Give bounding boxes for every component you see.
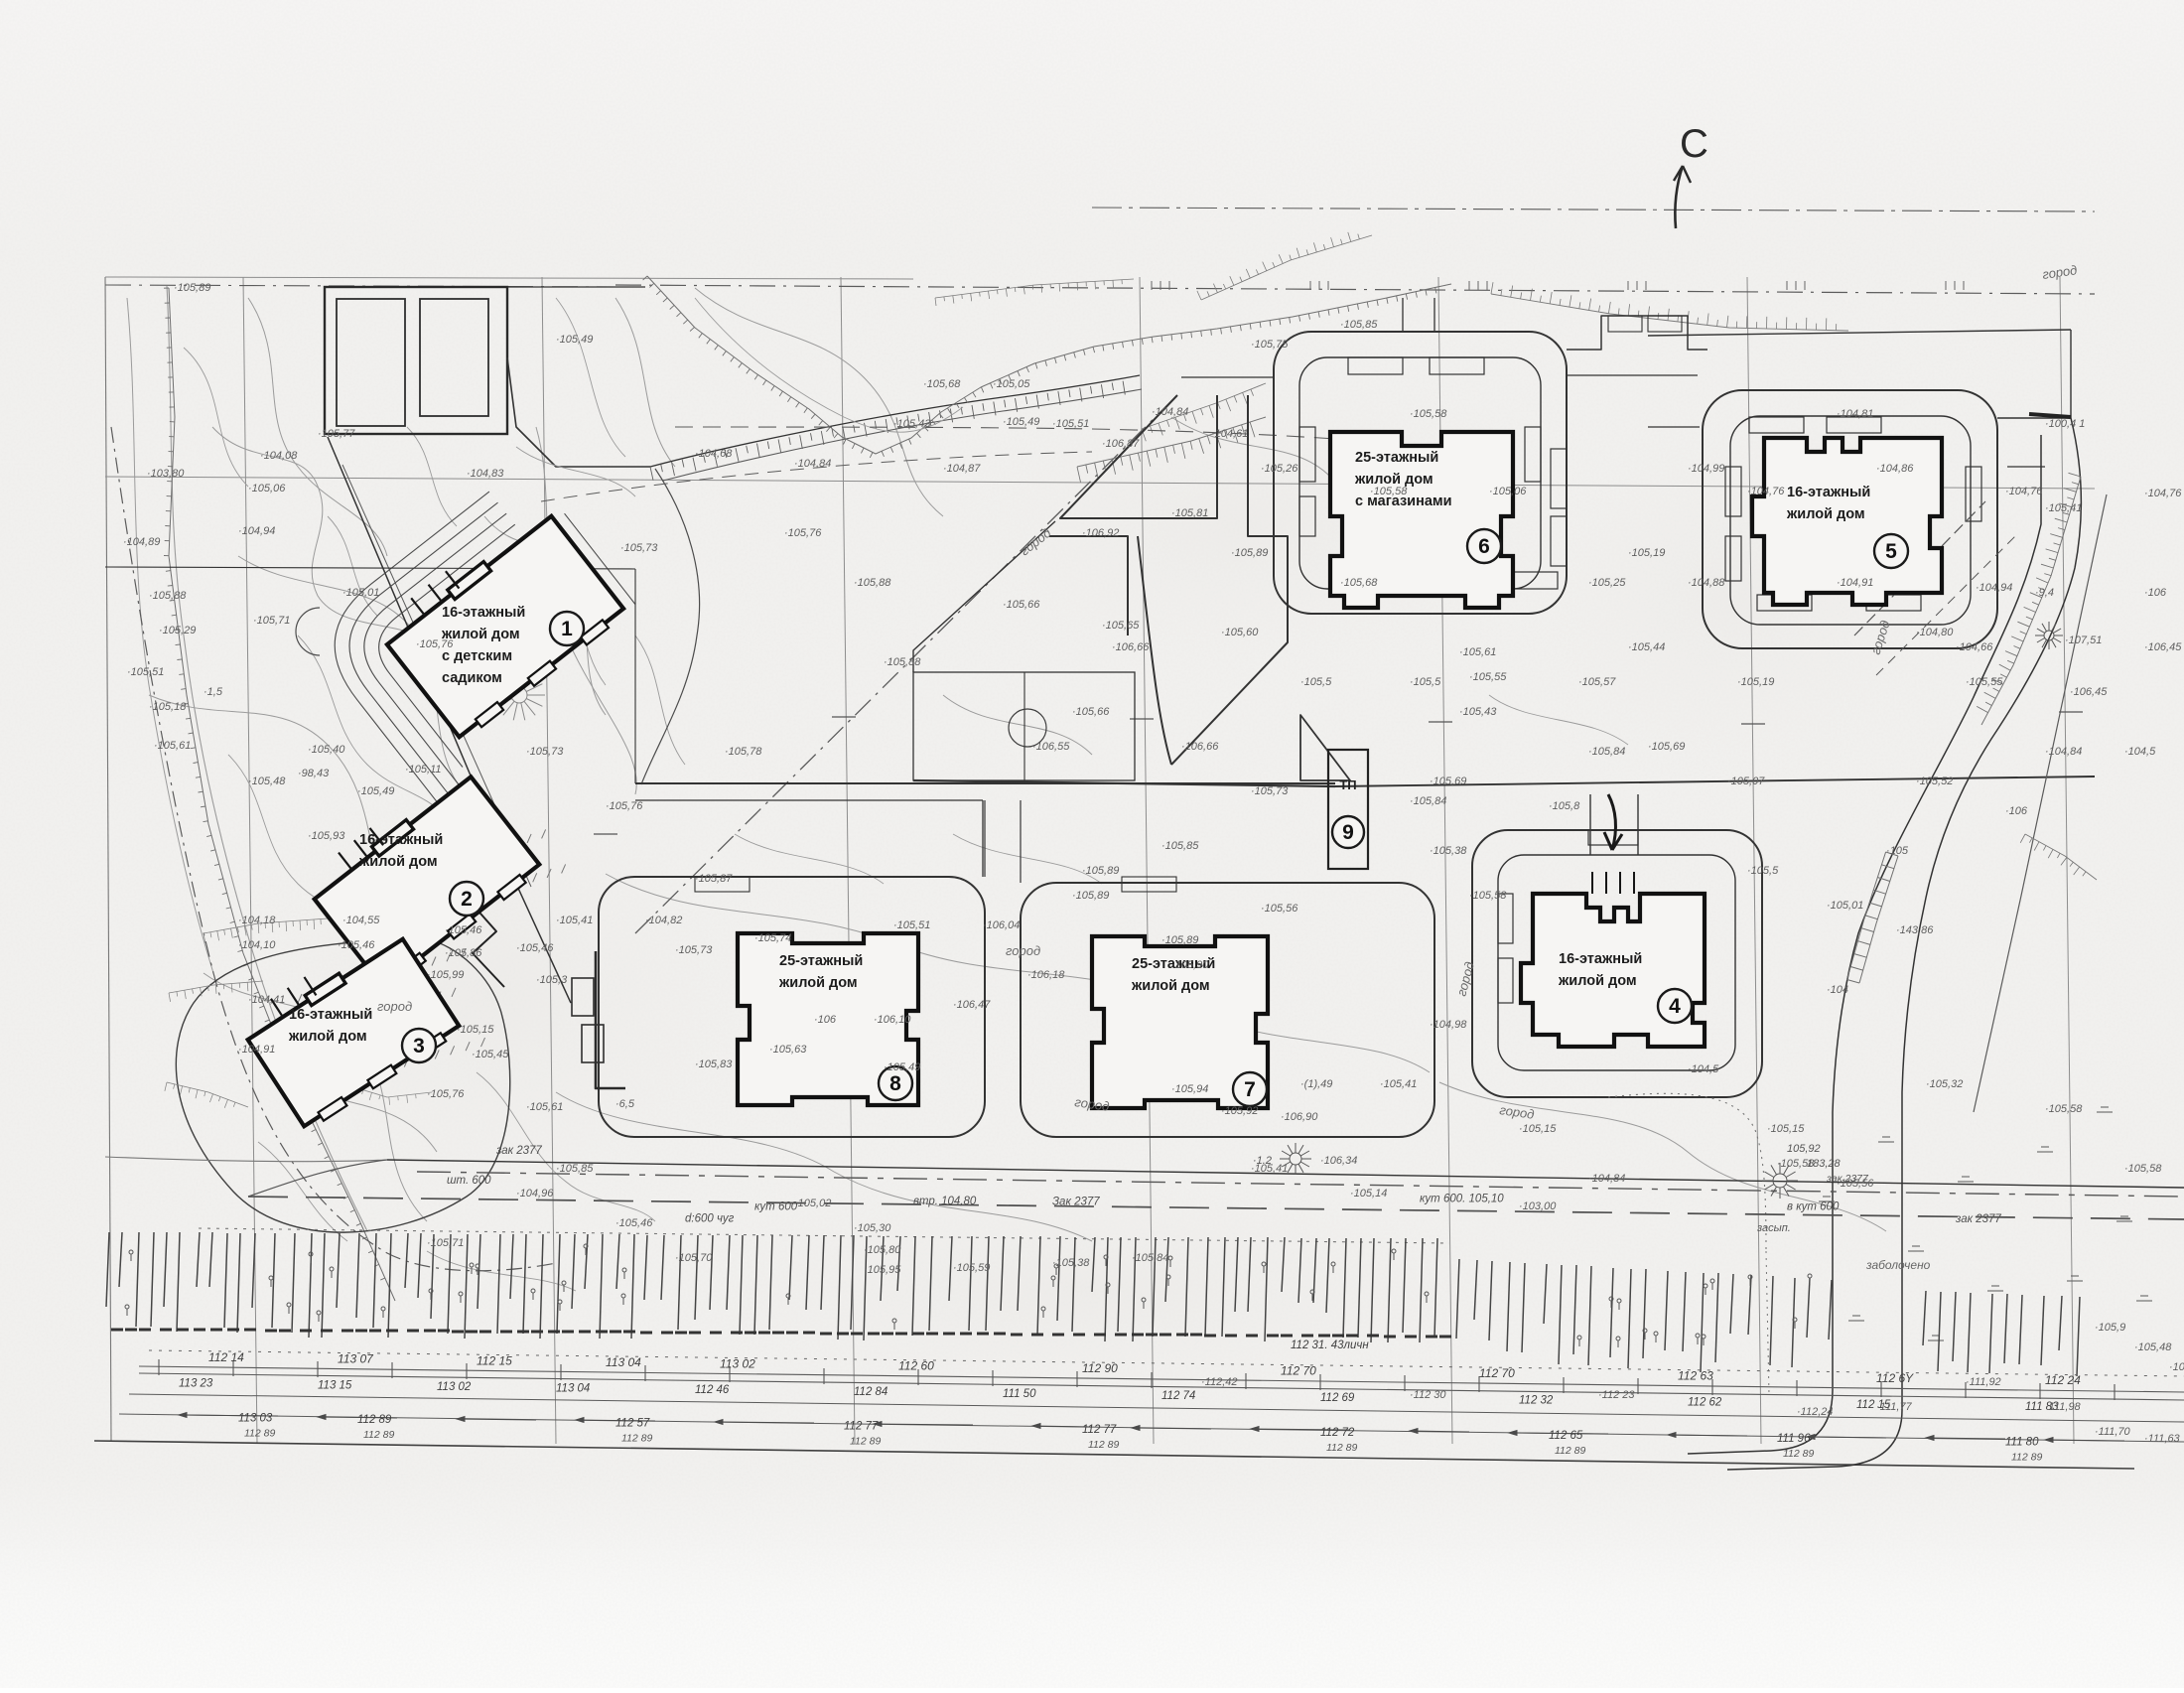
svg-text:С: С: [1680, 122, 1708, 166]
svg-text:·105,8: ·105,8: [1549, 800, 1580, 812]
svg-text:·105,89: ·105,89: [174, 282, 210, 294]
svg-text:·105,88: ·105,88: [854, 577, 891, 589]
svg-text:·105,66: ·105,66: [1003, 599, 1040, 611]
svg-text:·105,61: ·105,61: [1459, 646, 1496, 658]
svg-text:·105,46: ·105,46: [445, 924, 482, 936]
svg-text:·104,76: ·104,76: [2005, 486, 2043, 497]
svg-text:·105,01: ·105,01: [342, 587, 379, 599]
svg-text:4: 4: [1669, 995, 1681, 1018]
svg-text:·105,83: ·105,83: [695, 1058, 733, 1070]
svg-text:·105,73: ·105,73: [675, 944, 713, 956]
svg-text:·104,89: ·104,89: [123, 536, 160, 548]
svg-text:·105,85: ·105,85: [556, 1163, 594, 1175]
svg-text:·100,4 1: ·100,4 1: [2045, 418, 2085, 430]
svg-text:·104,76: ·104,76: [1747, 486, 1785, 497]
svg-text:жилой дом: жилой дом: [1558, 973, 1637, 989]
svg-text:·105,01: ·105,01: [1827, 900, 1863, 912]
svg-text:·106,87: ·106,87: [1102, 438, 1140, 450]
svg-text:112 69: 112 69: [1320, 1392, 1355, 1404]
svg-text:·104,68: ·104,68: [695, 448, 733, 460]
svg-text:·104,80: ·104,80: [1916, 627, 1954, 638]
svg-text:·105,52: ·105,52: [1916, 776, 1953, 787]
svg-text:·105,63: ·105,63: [769, 1044, 807, 1056]
svg-text:кут 600. 105,10: кут 600. 105,10: [1420, 1193, 1504, 1204]
svg-text:·111,70: ·111,70: [2095, 1426, 2131, 1438]
svg-text:·104,81: ·104,81: [1837, 408, 1873, 420]
svg-text:·104,99: ·104,99: [1688, 463, 1724, 475]
svg-text:·105,55: ·105,55: [1966, 676, 2003, 688]
svg-text:113 03: 113 03: [238, 1413, 273, 1425]
svg-text:жилой дом: жилой дом: [1786, 506, 1865, 522]
svg-text:112 89: 112 89: [1555, 1445, 1585, 1457]
svg-text:·111,98: ·111,98: [2045, 1401, 2082, 1413]
svg-text:·105,99: ·105,99: [427, 969, 464, 981]
svg-text:·105,74: ·105,74: [754, 932, 791, 944]
svg-text:·105,47: ·105,47: [2169, 1361, 2184, 1373]
svg-text:·106,47: ·106,47: [953, 999, 991, 1011]
svg-text:112 89: 112 89: [621, 1433, 652, 1445]
svg-text:112 65: 112 65: [1549, 1430, 1583, 1442]
svg-text:·106,66: ·106,66: [1181, 741, 1219, 753]
svg-text:112 89: 112 89: [2011, 1451, 2042, 1463]
svg-text:·105,93: ·105,93: [308, 830, 345, 842]
svg-text:·105,51: ·105,51: [1052, 418, 1089, 430]
svg-text:112 84: 112 84: [854, 1386, 887, 1398]
svg-text:·105,38: ·105,38: [1430, 845, 1467, 857]
svg-text:105,92: 105,92: [1787, 1143, 1821, 1155]
svg-text:·105,85: ·105,85: [1161, 840, 1199, 852]
svg-text:113 04: 113 04: [556, 1382, 590, 1394]
svg-text:садиком: садиком: [442, 670, 502, 686]
svg-text:·105,41: ·105,41: [1380, 1078, 1417, 1090]
svg-text:·104,91: ·104,91: [1837, 577, 1873, 589]
svg-text:·105,84: ·105,84: [1588, 746, 1625, 758]
svg-text:·105,30: ·105,30: [854, 1222, 891, 1234]
svg-text:·105,25: ·105,25: [1588, 577, 1626, 589]
svg-text:113 02: 113 02: [437, 1381, 472, 1393]
svg-text:·105,60: ·105,60: [1221, 627, 1259, 638]
svg-text:·106,10: ·106,10: [874, 1014, 911, 1026]
svg-text:·105,88: ·105,88: [149, 590, 187, 602]
svg-text:·104,94: ·104,94: [1976, 582, 2012, 594]
svg-text:город: город: [1006, 943, 1040, 958]
svg-text:·105,75: ·105,75: [1251, 339, 1289, 351]
svg-text:·105,69: ·105,69: [1430, 776, 1466, 787]
svg-text:·112,42: ·112,42: [1201, 1376, 1238, 1388]
svg-text:·104,5: ·104,5: [1688, 1063, 1719, 1075]
svg-text:25-этажный: 25-этажный: [779, 953, 863, 969]
svg-text:·104,96: ·104,96: [516, 1188, 554, 1199]
svg-text:Зак 2377: Зак 2377: [1052, 1196, 1100, 1207]
svg-text:·105,15: ·105,15: [1767, 1123, 1805, 1135]
svg-text:112 24: 112 24: [2045, 1373, 2081, 1387]
svg-text:·104,5: ·104,5: [2124, 746, 2156, 758]
svg-text:·105,06: ·105,06: [248, 483, 286, 494]
svg-text:·143,86: ·143,86: [1896, 924, 1934, 936]
svg-text:ТП: ТП: [1339, 777, 1356, 792]
svg-text:зак 2377: зак 2377: [1826, 1173, 1869, 1185]
svg-text:·105,51: ·105,51: [893, 919, 930, 931]
svg-text:111 50: 111 50: [1003, 1388, 1036, 1400]
svg-text:·105,38: ·105,38: [1052, 1257, 1090, 1269]
svg-text:·105,69: ·105,69: [1648, 741, 1685, 753]
svg-text:·105,07: ·105,07: [1727, 776, 1765, 787]
svg-text:·105,15: ·105,15: [1519, 1123, 1557, 1135]
svg-text:·105,86: ·105,86: [445, 947, 482, 959]
svg-text:втр. 104,80: втр. 104,80: [913, 1196, 977, 1207]
svg-text:·104,83: ·104,83: [467, 468, 504, 480]
svg-text:113 02: 113 02: [720, 1356, 755, 1370]
svg-text:113 23: 113 23: [179, 1378, 213, 1390]
svg-text:·105,58: ·105,58: [1469, 890, 1507, 902]
svg-text:·105,84: ·105,84: [1132, 1252, 1168, 1264]
svg-text:·105,70: ·105,70: [675, 1252, 713, 1264]
svg-text:·104,76: ·104,76: [2144, 488, 2182, 499]
svg-text:·105,41: ·105,41: [2045, 502, 2082, 514]
svg-text:·105,06: ·105,06: [1489, 486, 1527, 497]
svg-text:2: 2: [461, 888, 473, 911]
svg-text:·105,49: ·105,49: [884, 1061, 920, 1073]
svg-text:·112 23: ·112 23: [1598, 1389, 1635, 1401]
svg-text:16-этажный: 16-этажный: [442, 605, 525, 621]
svg-text:·104,61: ·104,61: [1211, 428, 1248, 440]
svg-text:·105,71: ·105,71: [253, 615, 290, 627]
svg-text:·105,76: ·105,76: [416, 638, 454, 650]
svg-text:183,28: 183,28: [1807, 1158, 1842, 1170]
svg-text:112 46: 112 46: [695, 1384, 730, 1396]
svg-text:·112,24: ·112,24: [1797, 1406, 1834, 1418]
svg-text:112 70: 112 70: [1281, 1364, 1316, 1378]
svg-text:·104,10: ·104,10: [238, 939, 276, 951]
svg-text:·105,58: ·105,58: [2045, 1103, 2083, 1115]
svg-text:·105,02: ·105,02: [794, 1198, 831, 1209]
svg-text:·105,89: ·105,89: [1231, 547, 1268, 559]
svg-text:112 74: 112 74: [1161, 1390, 1195, 1402]
svg-text:·106,90: ·106,90: [1281, 1111, 1318, 1123]
svg-text:·1.2: ·1.2: [1253, 1155, 1272, 1167]
svg-text:·105,85: ·105,85: [1340, 319, 1378, 331]
svg-text:112 89: 112 89: [1088, 1439, 1119, 1451]
svg-text:·9,4: ·9,4: [2035, 587, 2054, 599]
svg-text:·105,73: ·105,73: [1251, 785, 1289, 797]
svg-text:·104,41: ·104,41: [248, 994, 285, 1006]
svg-text:16-этажный: 16-этажный: [1559, 951, 1642, 967]
svg-text:·104,84: ·104,84: [794, 458, 831, 470]
svg-text:·106,66: ·106,66: [1112, 641, 1150, 653]
svg-text:·105,58: ·105,58: [1410, 408, 1447, 420]
svg-text:d:600 чуг: d:600 чуг: [685, 1212, 735, 1224]
svg-text:112 14: 112 14: [208, 1350, 244, 1364]
svg-text:·106,18: ·106,18: [1027, 969, 1065, 981]
svg-text:113 04: 113 04: [606, 1355, 641, 1369]
svg-text:16-этажный: 16-этажный: [1787, 485, 1870, 500]
svg-text:·105,80: ·105,80: [864, 1244, 901, 1256]
svg-text:3: 3: [413, 1035, 425, 1058]
svg-text:·105,65: ·105,65: [1102, 620, 1140, 632]
svg-text:·105,81: ·105,81: [1171, 507, 1208, 519]
svg-text:·105,43: ·105,43: [1459, 706, 1497, 718]
svg-text:8: 8: [889, 1072, 901, 1095]
svg-text:·105,32: ·105,32: [1926, 1078, 1963, 1090]
svg-text:·106,45: ·106,45: [2144, 641, 2182, 653]
svg-text:зак 2377: зак 2377: [1955, 1213, 2001, 1225]
svg-text:112 32: 112 32: [1519, 1395, 1554, 1407]
svg-text:·105,48: ·105,48: [2134, 1341, 2172, 1353]
svg-text:·104,08: ·104,08: [260, 450, 298, 462]
svg-text:112 89: 112 89: [850, 1436, 881, 1448]
svg-text:·105,11: ·105,11: [405, 764, 442, 776]
svg-text:·105,89: ·105,89: [1082, 865, 1119, 877]
svg-text:112 62: 112 62: [1688, 1397, 1722, 1409]
svg-text:·106,92: ·106,92: [1082, 527, 1119, 539]
svg-text:·105,18: ·105,18: [149, 701, 187, 713]
svg-text:·105,76: ·105,76: [784, 527, 822, 539]
svg-text:111 80: 111 80: [2005, 1436, 2039, 1448]
svg-text:112 89: 112 89: [244, 1428, 275, 1440]
svg-text:·105,40: ·105,40: [308, 744, 345, 756]
svg-text:·105,92: ·105,92: [1221, 1105, 1258, 1117]
svg-text:·105,55: ·105,55: [1469, 671, 1507, 683]
svg-text:1: 1: [561, 618, 573, 640]
svg-text:112 63: 112 63: [1678, 1369, 1713, 1383]
svg-text:·105,45: ·105,45: [472, 1049, 509, 1060]
svg-text:заболочено: заболочено: [1865, 1258, 1931, 1272]
svg-text:кут 600: кут 600: [754, 1201, 798, 1213]
svg-text:113 07: 113 07: [338, 1352, 374, 1366]
svg-text:·105,71: ·105,71: [427, 1237, 464, 1249]
svg-text:·112 30: ·112 30: [1410, 1389, 1446, 1401]
svg-text:·105,76: ·105,76: [427, 1088, 465, 1100]
svg-text:·105,88: ·105,88: [884, 656, 921, 668]
svg-text:·98,43: ·98,43: [298, 768, 330, 779]
svg-text:·105,48: ·105,48: [248, 776, 286, 787]
svg-text:·105,87: ·105,87: [695, 873, 733, 885]
svg-text:·106: ·106: [2005, 805, 2028, 817]
svg-text:·105,89: ·105,89: [1161, 934, 1198, 946]
svg-text:·105,59: ·105,59: [953, 1262, 990, 1274]
svg-text:112 77: 112 77: [844, 1421, 879, 1433]
svg-text:·105,5: ·105,5: [1747, 865, 1779, 877]
svg-text:·105,77: ·105,77: [318, 428, 355, 440]
svg-text:113 15: 113 15: [318, 1379, 352, 1391]
svg-text:·105,73: ·105,73: [620, 542, 658, 554]
svg-text:засып.: засып.: [1756, 1222, 1791, 1234]
svg-text:·105,76: ·105,76: [606, 800, 643, 812]
svg-text:·105,51: ·105,51: [127, 666, 164, 678]
svg-text:·105,3: ·105,3: [536, 974, 568, 986]
svg-text:·105,66: ·105,66: [1072, 706, 1110, 718]
svg-text:зак 2377: зак 2377: [495, 1145, 542, 1157]
svg-text:·105,44: ·105,44: [1628, 641, 1665, 653]
svg-text:112 15: 112 15: [477, 1353, 512, 1367]
svg-text:·104: ·104: [1827, 984, 1848, 996]
svg-text:16-этажный: 16-этажный: [289, 1007, 372, 1023]
svg-text:·105,43: ·105,43: [893, 418, 931, 430]
svg-text:·105,19: ·105,19: [1737, 676, 1774, 688]
svg-text:·106,34: ·106,34: [1320, 1155, 1357, 1167]
svg-text:·104,91: ·104,91: [238, 1044, 275, 1056]
svg-text:·105,49: ·105,49: [556, 334, 593, 346]
svg-text:·105,94: ·105,94: [1171, 1083, 1208, 1095]
svg-text:·105,73: ·105,73: [526, 746, 564, 758]
svg-text:·103,80: ·103,80: [147, 468, 185, 480]
svg-text:·106,55: ·106,55: [1032, 741, 1070, 753]
svg-text:5: 5: [1885, 540, 1897, 563]
svg-text:·105,56: ·105,56: [1261, 903, 1298, 915]
svg-text:·111,77: ·111,77: [1876, 1401, 1913, 1413]
svg-text:·105: ·105: [1886, 845, 1909, 857]
svg-text:·105,5: ·105,5: [1300, 676, 1332, 688]
svg-text:112 89: 112 89: [357, 1414, 392, 1426]
svg-text:·104,82: ·104,82: [645, 915, 682, 926]
svg-text:16-этажный: 16-этажный: [359, 832, 443, 848]
svg-text:·105,61: ·105,61: [526, 1101, 563, 1113]
svg-text:·105,46: ·105,46: [615, 1217, 653, 1229]
svg-text:·106: ·106: [814, 1014, 837, 1026]
svg-text:·105,15: ·105,15: [457, 1024, 494, 1036]
svg-text:·(1),49: ·(1),49: [1300, 1078, 1332, 1090]
svg-text:112 89: 112 89: [1326, 1442, 1357, 1454]
svg-text:25-этажный: 25-этажный: [1355, 450, 1438, 466]
svg-text:·106,04: ·106,04: [983, 919, 1020, 931]
svg-text:112 31. 43личн: 112 31. 43личн: [1291, 1340, 1369, 1351]
svg-text:·106: ·106: [2144, 587, 2167, 599]
svg-text:112 60: 112 60: [898, 1359, 934, 1373]
svg-text:·105,46: ·105,46: [338, 939, 375, 951]
svg-text:·105,89: ·105,89: [1072, 890, 1109, 902]
svg-text:112 72: 112 72: [1320, 1427, 1355, 1439]
svg-text:·104,84: ·104,84: [2045, 746, 2082, 758]
svg-text:·105,14: ·105,14: [1350, 1188, 1387, 1199]
svg-text:·105,46: ·105,46: [516, 942, 554, 954]
svg-text:·105,58: ·105,58: [2124, 1163, 2162, 1175]
svg-text:112 89: 112 89: [1783, 1448, 1814, 1460]
svg-text:112 57: 112 57: [615, 1418, 650, 1430]
svg-text:·104,94: ·104,94: [238, 525, 275, 537]
svg-text:·105,05: ·105,05: [993, 378, 1030, 390]
svg-text:·104,87: ·104,87: [943, 463, 981, 475]
svg-text:112 6Y: 112 6Y: [1876, 1371, 1914, 1385]
svg-text:·103,00: ·103,00: [1519, 1200, 1557, 1212]
svg-text:·105,19: ·105,19: [1628, 547, 1665, 559]
svg-text:·6,5: ·6,5: [615, 1098, 635, 1110]
svg-text:·105,84: ·105,84: [1410, 795, 1446, 807]
svg-text:112 70: 112 70: [1479, 1366, 1515, 1380]
svg-text:·105,95: ·105,95: [864, 1264, 901, 1276]
svg-text:·105,58: ·105,58: [1370, 486, 1408, 497]
svg-text:·104,66: ·104,66: [1956, 641, 1993, 653]
svg-text:шт. 600: шт. 600: [447, 1175, 491, 1187]
svg-text:·105,68: ·105,68: [1340, 577, 1378, 589]
svg-text:·104,88: ·104,88: [1688, 577, 1725, 589]
svg-text:жилой дом: жилой дом: [1131, 978, 1210, 994]
svg-text:112 90: 112 90: [1082, 1361, 1118, 1375]
svg-text:9: 9: [1342, 821, 1354, 844]
svg-text:7: 7: [1244, 1078, 1256, 1101]
svg-text:·105,78: ·105,78: [725, 746, 762, 758]
svg-text:·107,51: ·107,51: [2065, 635, 2102, 646]
svg-text:·106,45: ·106,45: [2070, 686, 2108, 698]
svg-text:·104,55: ·104,55: [342, 915, 380, 926]
svg-text:·105,49: ·105,49: [357, 785, 394, 797]
svg-text:6: 6: [1478, 535, 1490, 558]
svg-text:·104,86: ·104,86: [1876, 463, 1914, 475]
svg-text:111 96: 111 96: [1777, 1433, 1811, 1445]
svg-text:·105,5: ·105,5: [1410, 676, 1441, 688]
svg-text:город: город: [377, 999, 412, 1014]
svg-text:·111,63: ·111,63: [2144, 1433, 2181, 1445]
svg-text:·105,90: ·105,90: [1171, 959, 1209, 971]
svg-text:·105,68: ·105,68: [923, 378, 961, 390]
svg-text:·104,18: ·104,18: [238, 915, 276, 926]
svg-text:·105,49: ·105,49: [1003, 416, 1039, 428]
svg-text:с детским: с детским: [442, 648, 512, 664]
svg-text:в кут 600: в кут 600: [1787, 1200, 1840, 1212]
svg-text:·104,84: ·104,84: [1152, 406, 1188, 418]
svg-text:·104,84: ·104,84: [1588, 1173, 1625, 1185]
svg-text:112 77: 112 77: [1082, 1424, 1117, 1436]
svg-text:·105,26: ·105,26: [1261, 463, 1298, 475]
svg-text:·105,9: ·105,9: [2095, 1322, 2125, 1334]
svg-text:·105,29: ·105,29: [159, 625, 196, 636]
svg-text:112 89: 112 89: [363, 1429, 394, 1441]
svg-text:·105,57: ·105,57: [1578, 676, 1616, 688]
svg-text:·1,5: ·1,5: [204, 686, 223, 698]
svg-text:·105,41: ·105,41: [556, 915, 593, 926]
svg-text:·105,61: ·105,61: [154, 740, 191, 752]
svg-text:·104,98: ·104,98: [1430, 1019, 1467, 1031]
svg-text:жилой дом: жилой дом: [778, 975, 858, 991]
svg-text:жилой дом: жилой дом: [358, 854, 438, 870]
svg-text:жилой дом: жилой дом: [288, 1029, 367, 1045]
svg-text:·111,92: ·111,92: [1966, 1376, 2001, 1388]
